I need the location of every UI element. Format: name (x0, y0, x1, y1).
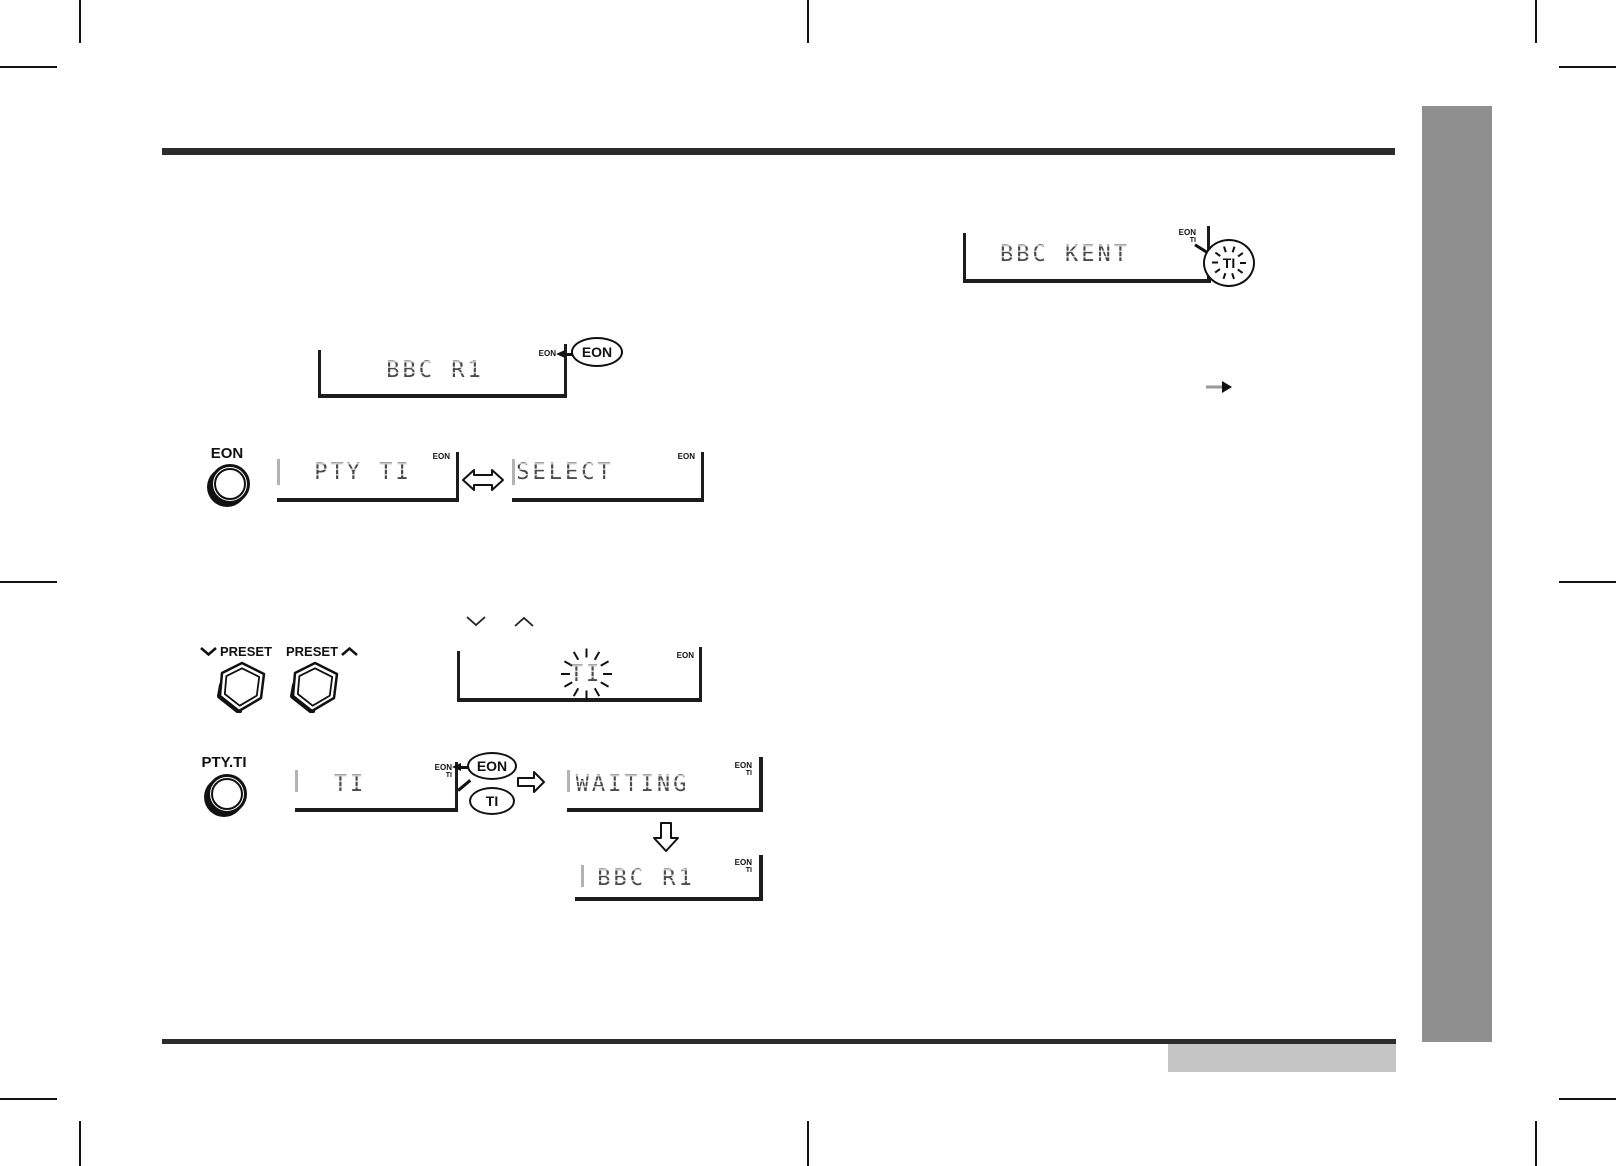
crop-mark-bottom-right-v (1535, 1121, 1537, 1166)
lcd-bottom-border (457, 698, 702, 702)
blink-ray (1215, 252, 1221, 257)
lcd-bottom-border (575, 897, 763, 901)
blink-ray (585, 649, 587, 658)
top-rule (162, 148, 1395, 155)
crop-mark-bottom-left-v (79, 1121, 81, 1166)
lcd-bottom-border (277, 498, 459, 502)
lcd-right-border (759, 855, 763, 901)
chevron-up-icon (341, 647, 358, 656)
eon-indicator: EON (677, 652, 694, 660)
lcd-indicators: EON TI (714, 762, 752, 778)
eon-callout-label: EON (477, 758, 507, 774)
eon-indicator: EON (678, 453, 695, 461)
lcd-indicators: EON (520, 350, 556, 358)
chevron-down-icon (466, 616, 486, 627)
lcd-indicators: EON TI (420, 764, 452, 780)
crop-mark-mid-right-h (1559, 581, 1616, 583)
eon-button (210, 464, 250, 504)
crop-mark-top-left-v (79, 0, 81, 43)
preset-up-button (286, 661, 344, 713)
lcd-ti-text: TI (566, 662, 606, 687)
lcd-indicators: EON (661, 453, 695, 461)
down-block-arrow-icon (652, 821, 680, 853)
page-number-box (1168, 1044, 1396, 1072)
lcd-station-name: BBC R1 (582, 866, 710, 891)
blink-ray (572, 651, 578, 660)
lcd-mode-text: PTY TI (288, 460, 438, 485)
ti-indicator: TI (746, 867, 752, 875)
chevron-up-icon (514, 616, 534, 627)
right-block-arrow-icon (516, 770, 546, 794)
blink-ray (593, 651, 599, 660)
lcd-bottom-border (318, 394, 567, 398)
blink-ray (1237, 252, 1243, 257)
lcd-indicators: EON TI (1148, 229, 1196, 245)
lcd-select-text: SELECT (495, 460, 635, 485)
ti-blinking-label: TI (1223, 255, 1235, 271)
crop-mark-bottom-left-h (0, 1098, 57, 1100)
pty-ti-button (207, 774, 247, 814)
lcd-right-border (759, 757, 763, 812)
preset-down-label: PRESET (200, 644, 272, 659)
lcd-ti-text: TI (320, 772, 380, 797)
lcd-indicators: EON (416, 453, 450, 461)
eon-indicator: EON (435, 764, 452, 772)
lcd-left-border (457, 651, 460, 702)
lcd-waiting-text: WAITING (570, 772, 695, 797)
lcd-bottom-border (963, 279, 1211, 283)
language-sidebar (1422, 106, 1492, 1042)
preset-down-text: PRESET (220, 644, 272, 659)
eon-callout-label: EON (582, 344, 612, 360)
preset-up-text: PRESET (286, 644, 338, 659)
lcd-left-border (318, 350, 321, 398)
lcd-right-border (701, 452, 704, 502)
preset-up-label: PRESET (286, 644, 358, 659)
crop-mark-mid-left-h (0, 581, 57, 583)
eon-indicator-callout: EON (467, 752, 517, 780)
lcd-station-name: BBC R1 (330, 358, 540, 383)
blink-ray (1240, 262, 1246, 264)
blink-ray (1232, 273, 1235, 279)
eon-button-label: EON (206, 445, 248, 462)
ti-blinking-callout: TI (1203, 239, 1255, 287)
ti-indicator-callout: TI (469, 787, 515, 815)
blink-ray (1232, 247, 1235, 253)
callout-tail (457, 779, 471, 791)
blink-ray (1212, 262, 1218, 264)
crop-mark-top-center-v (807, 0, 809, 43)
blink-ray (1223, 247, 1226, 253)
blink-ray (1223, 273, 1226, 279)
crop-mark-top-right-h (1559, 66, 1616, 68)
eon-indicator: EON (539, 350, 556, 358)
preset-down-button (213, 661, 271, 713)
lcd-right-border (456, 452, 459, 502)
ti-indicator: TI (446, 772, 452, 780)
lcd-bottom-border (295, 808, 458, 812)
ti-indicator: TI (746, 770, 752, 778)
eon-indicator: EON (735, 859, 752, 867)
lcd-left-border (963, 233, 966, 283)
lcd-indicators: EON (658, 652, 694, 660)
lcd-bottom-border (567, 808, 763, 812)
lcd-bottom-border (512, 498, 704, 502)
blink-ray (1237, 269, 1243, 274)
eon-callout: EON (571, 337, 623, 367)
blink-ray (1215, 269, 1221, 274)
crop-mark-top-right-v (1535, 0, 1537, 43)
lcd-station-name: BBC KENT (975, 242, 1155, 267)
right-arrow-icon (1206, 381, 1232, 393)
ti-callout-label: TI (486, 793, 498, 809)
blink-ray (593, 688, 599, 697)
pty-ti-button-label: PTY.TI (198, 754, 250, 771)
eon-indicator: EON (1179, 229, 1196, 237)
eon-indicator: EON (735, 762, 752, 770)
lcd-right-border (699, 647, 702, 702)
blink-ray (572, 688, 578, 697)
crop-mark-bottom-right-h (1559, 1098, 1616, 1100)
eon-indicator: EON (433, 453, 450, 461)
manual-page: BBC KENT EON TI TI BBC R1 EON EON EON (0, 0, 1616, 1166)
blink-ray (585, 691, 587, 700)
lcd-ghost-tick (295, 770, 298, 792)
crop-mark-top-left-h (0, 66, 57, 68)
lcd-ghost-tick (277, 459, 280, 485)
left-arrowhead-icon (556, 350, 565, 358)
crop-mark-bottom-center-v (807, 1121, 809, 1166)
chevron-down-icon (200, 647, 217, 656)
lcd-indicators: EON TI (714, 859, 752, 875)
